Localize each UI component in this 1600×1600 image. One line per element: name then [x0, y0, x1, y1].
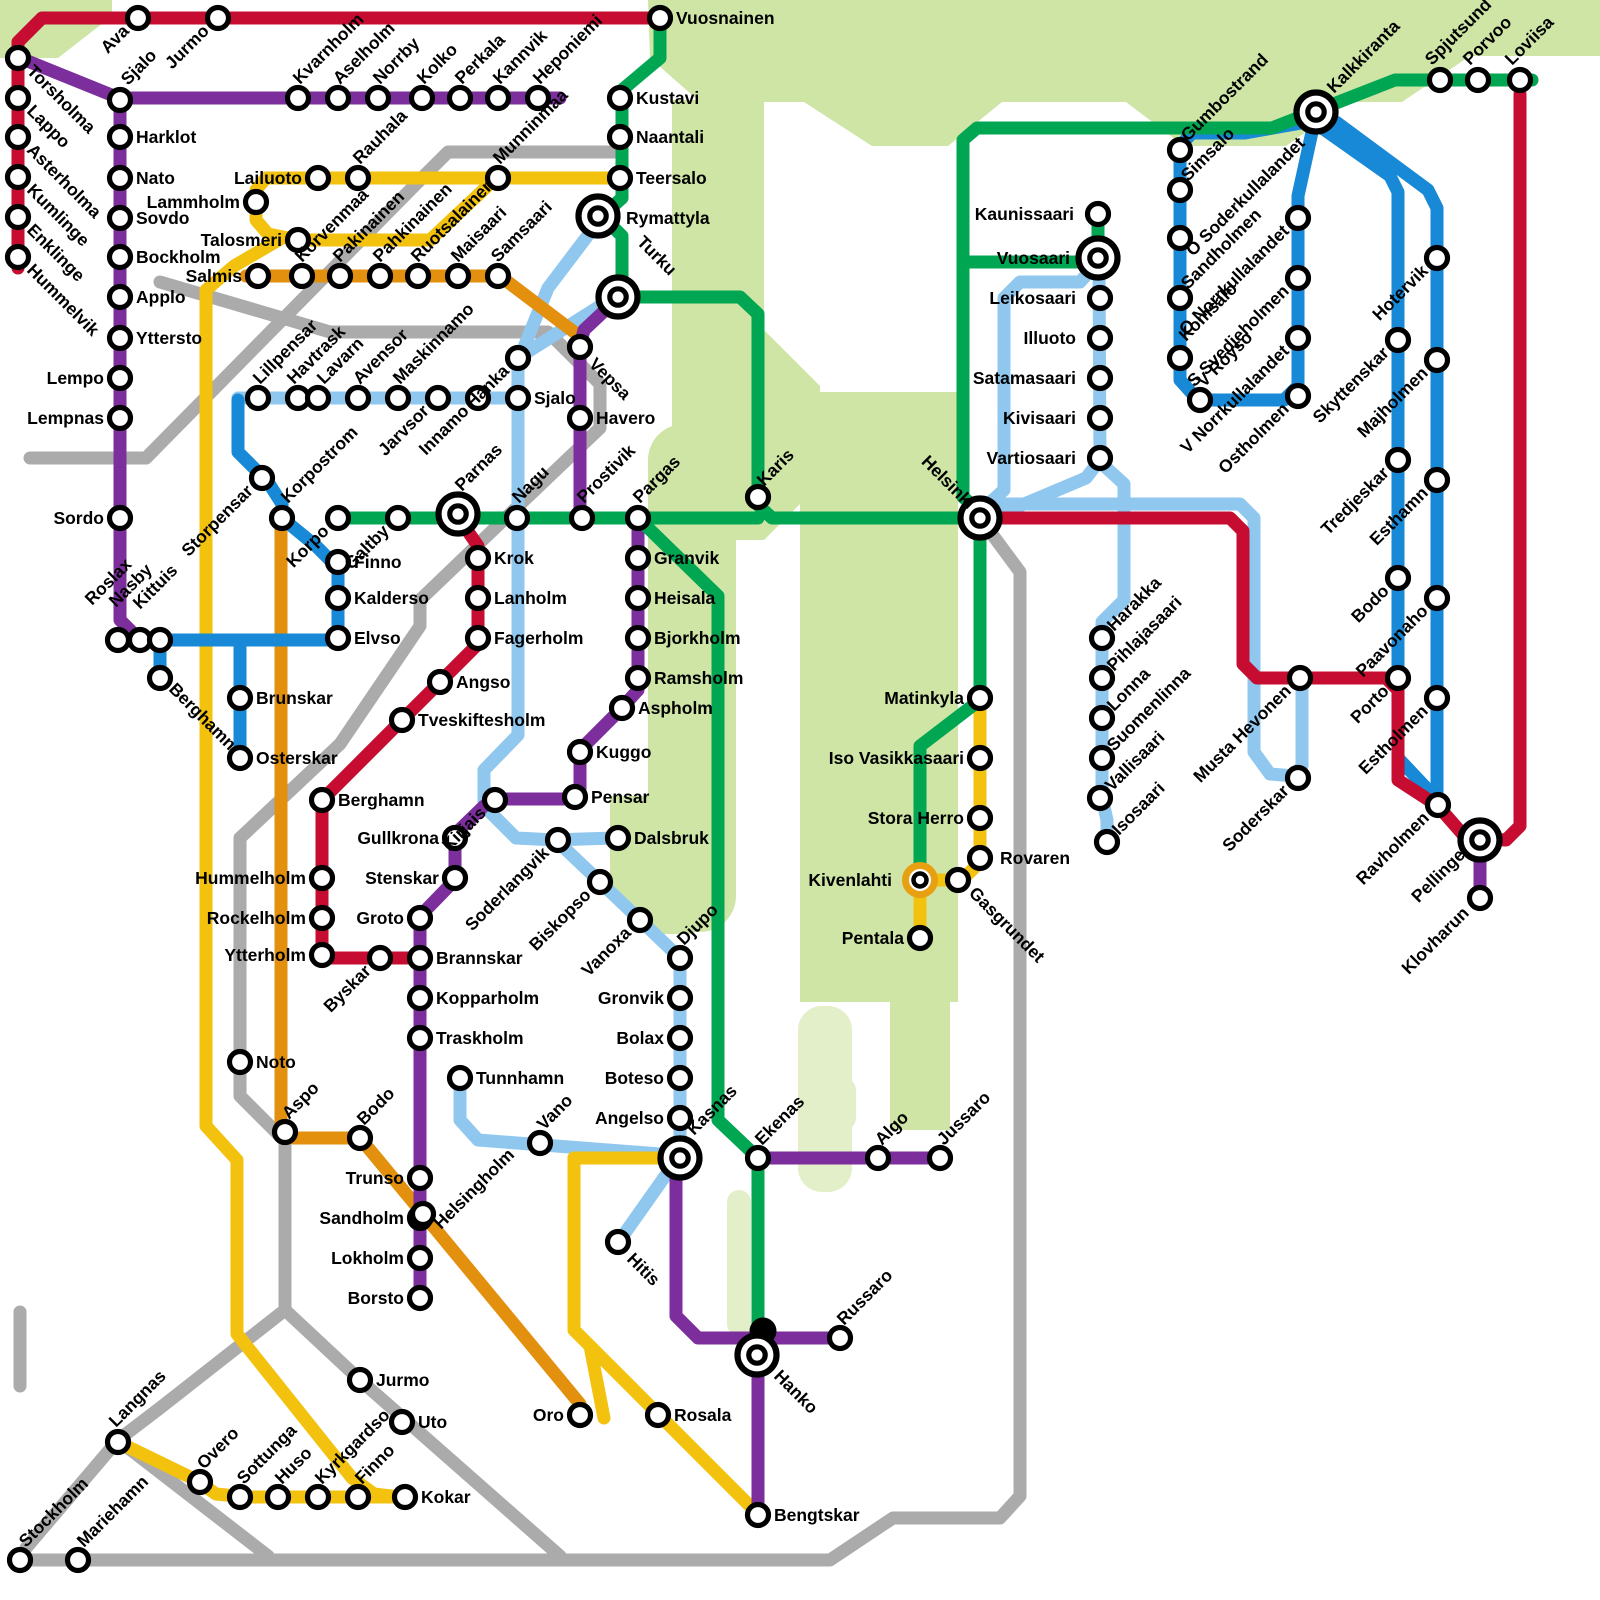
- label-fagerholm: Fagerholm: [494, 628, 583, 648]
- label-uto: Uto: [418, 1412, 447, 1432]
- station-vepsa[interactable]: [570, 337, 591, 358]
- land-hanko-strip: [727, 1190, 751, 1336]
- station-musta-hevonen[interactable]: [1290, 668, 1311, 689]
- station-yttersto[interactable]: [110, 328, 131, 349]
- station-gronvik[interactable]: [670, 988, 691, 1009]
- station-loviisa[interactable]: [1510, 70, 1531, 91]
- station-pargas[interactable]: [628, 508, 649, 529]
- station-iso-vasikkasaari[interactable]: [970, 748, 991, 769]
- station-hummelholm[interactable]: [312, 868, 333, 889]
- station-harklot[interactable]: [110, 127, 131, 148]
- label-ramsholm: Ramsholm: [654, 668, 743, 688]
- station-samsaari[interactable]: [488, 266, 509, 287]
- station-tunnhamn[interactable]: [450, 1068, 471, 1089]
- station-vallisaari[interactable]: [1090, 788, 1111, 809]
- label-pellinge: Pellinge: [1407, 845, 1469, 907]
- station-v-royso[interactable]: [1190, 390, 1211, 411]
- station-leikosaari[interactable]: [1090, 288, 1111, 309]
- station-korpostrom[interactable]: [272, 508, 293, 529]
- station-ramsholm[interactable]: [628, 668, 649, 689]
- label-sjalo: Sjalo: [534, 388, 576, 408]
- label-noto: Noto: [256, 1052, 296, 1072]
- station-matinkyla[interactable]: [970, 688, 991, 709]
- label-kustavi: Kustavi: [636, 88, 699, 108]
- station-brunskar[interactable]: [230, 688, 251, 709]
- label-kopparholm: Kopparholm: [436, 988, 539, 1008]
- station-hanko[interactable]: [738, 1336, 777, 1375]
- label-lempo: Lempo: [47, 368, 104, 388]
- station-harakka[interactable]: [1092, 628, 1113, 649]
- station-pensar[interactable]: [565, 787, 586, 808]
- label-talosmeri: Talosmeri: [201, 230, 282, 250]
- station-perkala[interactable]: [450, 88, 471, 109]
- label-korpostrom: Korpostrom: [277, 422, 362, 507]
- station-torsholma[interactable]: [8, 48, 29, 69]
- station-bengtskar[interactable]: [748, 1505, 769, 1526]
- label-ytterholm: Ytterholm: [224, 945, 306, 965]
- station-berghamn[interactable]: [150, 668, 171, 689]
- station-pihlajasaari[interactable]: [1092, 668, 1113, 689]
- station-jussaro[interactable]: [930, 1148, 951, 1169]
- station-algo[interactable]: [868, 1148, 889, 1169]
- label-byskar: Byskar: [319, 961, 375, 1017]
- label-angelso: Angelso: [595, 1108, 664, 1128]
- station-hotervik[interactable]: [1427, 248, 1448, 269]
- station-kivisaari[interactable]: [1090, 408, 1111, 429]
- label-heisala: Heisala: [654, 588, 716, 608]
- station-ekenas[interactable]: [748, 1148, 769, 1169]
- station-vuosaari[interactable]: [1079, 239, 1118, 278]
- station-kaunissaari[interactable]: [1088, 204, 1109, 225]
- station-oro[interactable]: [570, 1405, 591, 1426]
- label-lammholm: Lammholm: [147, 192, 240, 212]
- label-lokholm: Lokholm: [331, 1248, 404, 1268]
- station-ostholmen[interactable]: [1288, 386, 1309, 407]
- station-parnas[interactable]: [439, 495, 478, 534]
- station-spjutsund[interactable]: [1430, 70, 1451, 91]
- station-sottunga[interactable]: [230, 1487, 251, 1508]
- station-sovdo[interactable]: [110, 208, 131, 229]
- station-sjalo[interactable]: [508, 388, 529, 409]
- station-lempo[interactable]: [110, 368, 131, 389]
- label-overo: Overo: [193, 1423, 243, 1473]
- label-salmis: Salmis: [186, 266, 243, 286]
- station-ravholmen[interactable]: [1428, 795, 1449, 816]
- label-tunnhamn: Tunnhamn: [476, 1068, 564, 1088]
- label-klovharun: Klovharun: [1397, 903, 1472, 978]
- station-pakinainen[interactable]: [330, 266, 351, 287]
- station-kokar[interactable]: [395, 1487, 416, 1508]
- station-huso[interactable]: [268, 1487, 289, 1508]
- station-mariehamn[interactable]: [68, 1550, 89, 1571]
- station-boteso[interactable]: [670, 1068, 691, 1089]
- station-rosala[interactable]: [648, 1405, 669, 1426]
- label-boteso: Boteso: [605, 1068, 664, 1088]
- label-porto: Porto: [1346, 681, 1392, 727]
- label-soderskar: Soderskar: [1218, 781, 1293, 856]
- station-soderskar[interactable]: [1288, 768, 1309, 789]
- label-vano: Vano: [533, 1090, 577, 1134]
- station-paavonaho[interactable]: [1427, 588, 1448, 609]
- station-roslax[interactable]: [108, 630, 129, 651]
- station-rymattyla[interactable]: [579, 197, 618, 236]
- station-russaro[interactable]: [830, 1328, 851, 1349]
- label-storpensar: Storpensar: [177, 481, 257, 561]
- station-traskholm[interactable]: [410, 1028, 431, 1049]
- station-nagu[interactable]: [507, 508, 528, 529]
- station-kannvik[interactable]: [488, 88, 509, 109]
- station-biskopso[interactable]: [590, 872, 611, 893]
- label-jurmo: Jurmo: [161, 21, 213, 73]
- station-pellinge[interactable]: [1461, 821, 1500, 860]
- station-komsalo[interactable]: [1170, 348, 1191, 369]
- station-porto[interactable]: [1388, 668, 1409, 689]
- station-pahkinainen[interactable]: [370, 266, 391, 287]
- station-brannskar[interactable]: [410, 948, 431, 969]
- label-traskholm: Traskholm: [436, 1028, 524, 1048]
- station-suomenlinna[interactable]: [1092, 748, 1113, 769]
- label-bockholm: Bockholm: [136, 247, 221, 267]
- label-kivenlahti: Kivenlahti: [808, 870, 892, 890]
- station-korpo[interactable]: [328, 508, 349, 529]
- label-krok: Krok: [494, 548, 534, 568]
- station-nato[interactable]: [110, 168, 131, 189]
- station-porvoo[interactable]: [1468, 70, 1489, 91]
- station-kustavi[interactable]: [610, 88, 631, 109]
- station-ruotsalainen[interactable]: [408, 266, 429, 287]
- archipelago-transit-map: TorsholmaLappoAsterholmaKumlingeEnklinge…: [0, 0, 1600, 1600]
- station-bodo[interactable]: [1388, 568, 1409, 589]
- station-vuosnainen[interactable]: [650, 8, 671, 29]
- station-ytterholm[interactable]: [312, 945, 333, 966]
- label-tveskiftesholm: Tveskiftesholm: [418, 710, 545, 730]
- station-overo[interactable]: [190, 1472, 211, 1493]
- station-naantali[interactable]: [610, 127, 631, 148]
- station-hanka[interactable]: [508, 348, 529, 369]
- station-maisaari[interactable]: [448, 266, 469, 287]
- land-ekenas-islet: [830, 1078, 856, 1130]
- station-pentala[interactable]: [910, 928, 931, 949]
- station-granvik[interactable]: [628, 548, 649, 569]
- station-borsto[interactable]: [410, 1288, 431, 1309]
- label-kokar: Kokar: [421, 1487, 471, 1507]
- station-lillpensar[interactable]: [248, 388, 269, 409]
- label-naantali: Naantali: [636, 127, 704, 147]
- label-dalsbruk: Dalsbruk: [634, 828, 709, 848]
- station-krok[interactable]: [468, 548, 489, 569]
- label-yttersto: Yttersto: [136, 328, 202, 348]
- label-vuosnainen: Vuosnainen: [676, 8, 775, 28]
- label-gullkrona: Gullkrona: [357, 828, 439, 848]
- station-teersalo[interactable]: [610, 168, 631, 189]
- station-lailuoto[interactable]: [308, 168, 329, 189]
- label-angso: Angso: [456, 672, 510, 692]
- station-satamasaari[interactable]: [1090, 368, 1111, 389]
- label-sordo: Sordo: [53, 508, 104, 528]
- station-aselholm[interactable]: [328, 88, 349, 109]
- station-salmis[interactable]: [248, 266, 269, 287]
- station-kasnas[interactable]: [661, 1139, 700, 1178]
- label-brunskar: Brunskar: [256, 688, 333, 708]
- label-kalderso: Kalderso: [354, 588, 429, 608]
- station-kolko[interactable]: [412, 88, 433, 109]
- label-ravholmen: Ravholmen: [1352, 808, 1433, 889]
- station-finno[interactable]: [348, 1487, 369, 1508]
- label-teersalo: Teersalo: [636, 168, 707, 188]
- station-djupo[interactable]: [670, 948, 691, 969]
- label-hitis: Hitis: [623, 1249, 664, 1290]
- station-turku[interactable]: [599, 278, 638, 317]
- label-bjorkholm: Bjorkholm: [654, 628, 741, 648]
- label-sjalo: Sjalo: [117, 45, 161, 89]
- station-lappo[interactable]: [8, 88, 29, 109]
- station-gasgrundet[interactable]: [948, 870, 969, 891]
- label-iso-vasikkasaari: Iso Vasikkasaari: [829, 748, 964, 768]
- label-bolax: Bolax: [616, 1028, 664, 1048]
- label-trunso: Trunso: [346, 1168, 404, 1188]
- station-trunso[interactable]: [410, 1168, 431, 1189]
- station-angso[interactable]: [430, 672, 451, 693]
- label-bengtskar: Bengtskar: [774, 1505, 860, 1525]
- label-jurmo: Jurmo: [376, 1370, 429, 1390]
- station-rovaren[interactable]: [970, 848, 991, 869]
- station-estholmen[interactable]: [1427, 688, 1448, 709]
- label-havero: Havero: [596, 408, 655, 428]
- station-rockelholm[interactable]: [312, 908, 333, 929]
- label-gasgrundet: Gasgrundet: [965, 883, 1049, 967]
- station-isosaari[interactable]: [1097, 832, 1118, 853]
- label-groto: Groto: [356, 908, 404, 928]
- station-aspo[interactable]: [275, 1122, 296, 1143]
- station-kyrkgardso[interactable]: [308, 1487, 329, 1508]
- label-borsto: Borsto: [348, 1288, 404, 1308]
- station-kalderso[interactable]: [328, 588, 349, 609]
- station-aspholm[interactable]: [612, 698, 633, 719]
- label-berghamn: Berghamn: [338, 790, 425, 810]
- label-rauhala: Rauhala: [349, 105, 411, 167]
- label-vanoxa: Vanoxa: [577, 923, 635, 981]
- station-applo[interactable]: [110, 287, 131, 308]
- station-byskar[interactable]: [370, 948, 391, 969]
- station-klovharun[interactable]: [1470, 888, 1491, 909]
- label-helsingholm: Helsingholm: [430, 1144, 518, 1232]
- label-rovaren: Rovaren: [1000, 848, 1070, 868]
- station-tredjeskar[interactable]: [1388, 450, 1409, 471]
- station-langnas[interactable]: [108, 1432, 129, 1453]
- station-dalsbruk[interactable]: [608, 828, 629, 849]
- station-majholmen[interactable]: [1427, 350, 1448, 371]
- station-prostivik[interactable]: [572, 508, 593, 529]
- label-harklot: Harklot: [136, 127, 196, 147]
- label-vartiosaari: Vartiosaari: [987, 448, 1077, 468]
- label-kivisaari: Kivisaari: [1003, 408, 1076, 428]
- line-lb-hitis: [620, 1172, 668, 1240]
- station-bjorkholm[interactable]: [628, 628, 649, 649]
- label-sandholm: Sandholm: [319, 1208, 404, 1228]
- station-lammholm[interactable]: [246, 192, 267, 213]
- label-elvso: Elvso: [354, 628, 401, 648]
- station-elvso[interactable]: [328, 628, 349, 649]
- station-kumlinge[interactable]: [8, 167, 29, 188]
- line-orange-south: [281, 520, 580, 1416]
- station-kalkkiranta[interactable]: [1297, 93, 1336, 132]
- station-kopparholm[interactable]: [410, 988, 431, 1009]
- label-parnas: Parnas: [451, 439, 507, 495]
- station-vartiosaari[interactable]: [1090, 448, 1111, 469]
- label-nato: Nato: [136, 168, 175, 188]
- station-jurmo[interactable]: [208, 8, 229, 29]
- station-heisala[interactable]: [628, 588, 649, 609]
- station-sordo[interactable]: [110, 508, 131, 529]
- label-bodo: Bodo: [1347, 581, 1393, 627]
- label-hummelholm: Hummelholm: [195, 868, 306, 888]
- label-ava: Ava: [96, 21, 133, 58]
- station-jurmo[interactable]: [350, 1370, 371, 1391]
- label-rosala: Rosala: [674, 1405, 732, 1425]
- label-pensar: Pensar: [591, 787, 650, 807]
- station-avensor[interactable]: [348, 388, 369, 409]
- station-norrby[interactable]: [368, 88, 389, 109]
- label-soderlangvik: Soderlangvik: [461, 843, 553, 935]
- station-stockholm[interactable]: [10, 1550, 31, 1571]
- label-lempnas: Lempnas: [27, 408, 104, 428]
- station-hummelvik[interactable]: [8, 247, 29, 268]
- station-sjalo[interactable]: [110, 90, 131, 111]
- label-s-svedjeholmen: S Svedjeholmen: [1183, 281, 1293, 391]
- station-bodo[interactable]: [350, 1128, 371, 1149]
- station-uto[interactable]: [392, 1412, 413, 1433]
- station-havero[interactable]: [570, 408, 591, 429]
- label-russaro: Russaro: [833, 1265, 897, 1329]
- station-korvenmaa[interactable]: [292, 266, 313, 287]
- label-stora-herro: Stora Herro: [868, 808, 964, 828]
- station-noto[interactable]: [230, 1052, 251, 1073]
- station-lonna[interactable]: [1092, 708, 1113, 729]
- station-asterholma[interactable]: [8, 127, 29, 148]
- station-kirjais[interactable]: [485, 790, 506, 811]
- station-bockholm[interactable]: [110, 247, 131, 268]
- label-vuosaari: Vuosaari: [997, 248, 1070, 268]
- station-stenskar[interactable]: [445, 868, 466, 889]
- station-v-norrkullalandet[interactable]: [1288, 328, 1309, 349]
- label-satamasaari: Satamasaari: [973, 368, 1076, 388]
- label-biskopso: Biskopso: [525, 885, 595, 955]
- station-lempnas[interactable]: [110, 408, 131, 429]
- station-ava[interactable]: [128, 8, 149, 29]
- station-fagerholm[interactable]: [468, 628, 489, 649]
- station-berghamn[interactable]: [312, 790, 333, 811]
- label-matinkyla: Matinkyla: [884, 688, 964, 708]
- station-lavarn[interactable]: [308, 388, 329, 409]
- station-enklinge[interactable]: [8, 207, 29, 228]
- label-hanko: Hanko: [770, 1366, 822, 1418]
- station-vano[interactable]: [530, 1133, 551, 1154]
- station-kuggo[interactable]: [570, 742, 591, 763]
- station-kittuis[interactable]: [150, 630, 171, 651]
- label-bodo: Bodo: [353, 1083, 399, 1129]
- station-helsingholm[interactable]: [413, 1204, 434, 1225]
- label-kuggo: Kuggo: [596, 742, 651, 762]
- station-soderlangvik[interactable]: [548, 830, 569, 851]
- station-skyttenskar[interactable]: [1388, 330, 1409, 351]
- label-oro: Oro: [533, 1405, 564, 1425]
- station-esthamn[interactable]: [1427, 470, 1448, 491]
- label-granvik: Granvik: [654, 548, 719, 568]
- station-kvarnholm[interactable]: [288, 88, 309, 109]
- label-leikosaari: Leikosaari: [989, 288, 1076, 308]
- label-kaunissaari: Kaunissaari: [975, 204, 1074, 224]
- label-brannskar: Brannskar: [436, 948, 523, 968]
- station-stora-herro[interactable]: [970, 808, 991, 829]
- map-svg: TorsholmaLappoAsterholmaKumlingeEnklinge…: [0, 0, 1600, 1600]
- label-lanholm: Lanholm: [494, 588, 567, 608]
- station-groto[interactable]: [410, 908, 431, 929]
- label-pentala: Pentala: [842, 928, 905, 948]
- station-lokholm[interactable]: [410, 1248, 431, 1269]
- station-maskinnamo[interactable]: [388, 388, 409, 409]
- station-o-norrkullalandet[interactable]: [1288, 208, 1309, 229]
- station-kivenlahti[interactable]: [906, 866, 935, 895]
- station-lanholm[interactable]: [468, 588, 489, 609]
- station-illuoto[interactable]: [1090, 328, 1111, 349]
- label-aspholm: Aspholm: [638, 698, 713, 718]
- label-rymattyla: Rymattyla: [626, 208, 710, 228]
- station-osterskar[interactable]: [230, 748, 251, 769]
- station-storpensar[interactable]: [252, 468, 273, 489]
- station-jarvsor[interactable]: [428, 388, 449, 409]
- label-stenskar: Stenskar: [365, 868, 439, 888]
- station-tveskiftesholm[interactable]: [392, 710, 413, 731]
- label-rockelholm: Rockelholm: [207, 908, 306, 928]
- station-bolax[interactable]: [670, 1028, 691, 1049]
- station-s-svedjeholmen[interactable]: [1288, 268, 1309, 289]
- label-lailuoto: Lailuoto: [234, 168, 302, 188]
- station-hitis[interactable]: [608, 1232, 629, 1253]
- line-gray-jurmo-branch: [285, 1310, 560, 1556]
- station-vanoxa[interactable]: [630, 910, 651, 931]
- label-illuoto: Illuoto: [1024, 328, 1076, 348]
- label-applo: Applo: [136, 287, 186, 307]
- station-galtby[interactable]: [388, 508, 409, 529]
- label-osterskar: Osterskar: [256, 748, 338, 768]
- label-gronvik: Gronvik: [598, 988, 664, 1008]
